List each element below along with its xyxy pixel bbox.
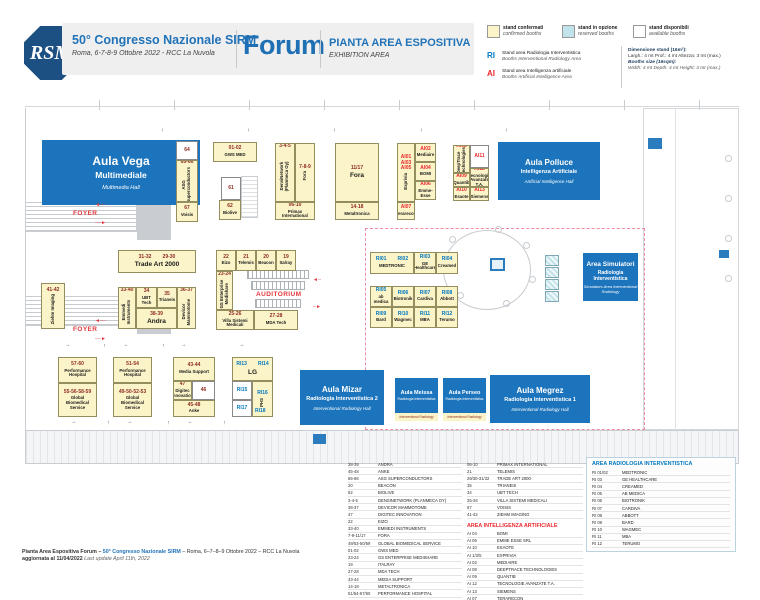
exhibitor-row: 7-9-11/17FORA — [348, 533, 462, 540]
booth-name: Esaote — [454, 195, 468, 200]
plan-title: PIANTA AREA ESPOSITIVA — [329, 37, 470, 49]
exhibitor-booth-number: 33-40 — [348, 526, 378, 531]
footer-line2: aggiornata al 11/04/2022 Last update Apr… — [22, 556, 352, 563]
foyer-block-upper — [137, 200, 171, 240]
auditorium-arrow-1: ◄╌ — [313, 277, 321, 283]
elevator-block — [719, 250, 729, 258]
arena-center-block — [490, 258, 505, 271]
booth-code: 57-60 — [71, 362, 84, 368]
hall-name: Area Simulatori — [586, 261, 634, 268]
booth-name: Metaltronica — [344, 212, 369, 217]
booth-name: MBA — [420, 318, 430, 323]
exhibitor-row: 45-48ANKE — [348, 468, 462, 475]
booth-19: 19Italray — [276, 250, 296, 271]
hall-subtitle-en: Artificial Intelligence Hall — [525, 179, 574, 184]
exhibitor-list-2: 06-10PRIMAX INTERNATIONAL21TELEMIS29/30-… — [467, 461, 583, 600]
exhibitor-name: TRADE ART 2000 — [497, 476, 583, 481]
hall-mizar: Aula MizarRadiologia Interventistica 2In… — [300, 370, 384, 425]
exhibitor-name: BEACON — [378, 483, 462, 488]
booth-code: RI03 — [420, 255, 431, 261]
booth-code: 36-37 — [180, 288, 193, 294]
flow-arrow: → — [123, 342, 129, 348]
exhibitor-booth-number: RI 01/02 — [592, 470, 622, 475]
booth-code: 51-54 — [126, 362, 139, 368]
arena-column — [523, 242, 530, 249]
exhibitor-booth-number: RI 05 — [592, 491, 622, 496]
booth-43-44: 43-44Media Support — [173, 357, 215, 381]
exhibitor-booth-number: RI 07 — [592, 506, 622, 511]
exhibitor-name: FORA — [378, 533, 462, 538]
booth-name: BOMI — [420, 172, 431, 177]
foyer-arrow-left-2: ◄╌╌ — [95, 318, 106, 324]
booth-AI02: AI02Mediaire — [415, 143, 436, 162]
booth-name: Fora — [350, 172, 364, 179]
exhibitor-row: AI 1/3/5EXPRIVIA — [467, 552, 583, 559]
booth-RI10: RI10Wagmec — [392, 307, 414, 328]
legend-swatch-confirmed — [487, 25, 500, 38]
booth-name: Biotronik — [394, 297, 413, 302]
exhibitor-name: METALTRONICA — [378, 584, 462, 589]
exhibitor-booth-number: 43-44 — [348, 577, 378, 582]
foyer-label-2: FOYER — [73, 326, 97, 333]
booth-code: 3-4-5 — [279, 144, 291, 150]
hall-name: Aula Perseo — [449, 390, 481, 396]
exhibitor-name: BOMI — [497, 531, 583, 536]
booth-38-39: 38-39Andra — [136, 308, 177, 329]
hall-meissa: Aula MeissaRadiologia InterventisticaInt… — [395, 378, 438, 421]
exhibitor-booth-number: 47 — [348, 512, 378, 517]
exhibitor-booth-number: 27-28 — [348, 569, 378, 574]
booth-name: Biolive — [223, 211, 237, 216]
hall-name: Aula Mizar — [322, 385, 362, 394]
exhibitor-name: QUANTIB — [497, 574, 583, 579]
booth-code: 7-8-9 — [299, 165, 311, 171]
exhibitor-row: 01-02GWS MED — [348, 547, 462, 554]
exhibitor-name: ESAOTE — [497, 545, 583, 550]
booth-name: LG — [248, 369, 257, 376]
booth-AI01-AI03-AI05: AI01 AI03 AI05Exprivia — [397, 143, 415, 202]
booth-55-56-58-59: 55-56-58-59Global Biomedical Service — [58, 383, 97, 417]
booth-06-10: 06-10Primax International — [275, 202, 315, 220]
ri-list-heading: AREA RADIOLOGIA INTERVENTISTICA — [592, 461, 730, 467]
column — [725, 235, 732, 242]
exhibitor-row: RI 06BIOTRONIK — [592, 498, 730, 505]
exhibitor-name: BIOLIVE — [378, 490, 462, 495]
exhibitor-booth-number: RI 12 — [592, 541, 622, 546]
exhibitor-name: EMME ESSE SRL — [497, 538, 583, 543]
legend-ai-code: AI — [487, 69, 495, 78]
booth-RI17: RI17 — [232, 400, 252, 417]
booth-67: 67Voisis — [176, 202, 198, 222]
booth-RI11: RI11MBA — [414, 307, 436, 328]
booth-name: Anke — [189, 409, 200, 414]
legend-swatch-available — [633, 25, 646, 38]
booth-code: AI11 — [474, 154, 484, 160]
flow-arrow: ↑ — [103, 343, 106, 349]
exhibitor-row: RI 05AB MEDICA — [592, 491, 730, 498]
foyer-arrow-right-2: ╌╌► — [95, 336, 106, 342]
legend-label-available: stand disponibiliavailable booths — [649, 25, 689, 37]
header: RSM 50° Congresso Nazionale SIRM Roma, 6… — [0, 0, 760, 96]
flow-arrow: ↓ — [420, 127, 423, 133]
hall-name: Aula Megrez — [516, 386, 563, 395]
exhibitor-name: EMMEDI INSTRUMENTS — [378, 526, 462, 531]
exhibitor-row: RI 07CARDIVA — [592, 505, 730, 512]
exhibitor-row: 23-24GS ENTERPRISE MEDISHARE — [348, 554, 462, 561]
booth-22: 22Eizo — [216, 250, 236, 271]
column — [725, 275, 732, 282]
booth-code: RI17 — [237, 406, 248, 412]
booth-RI04: RI04Creamed — [436, 252, 458, 274]
booth-57-60: 57-60Performance Hospital — [58, 357, 97, 383]
exhibitor-name: PERFORMANCE HOSPITAL — [378, 591, 462, 596]
booth-name: Cardiva — [417, 297, 433, 302]
left-wall — [25, 108, 26, 430]
flow-arrow: → — [181, 342, 187, 348]
exhibitor-row: 29/30-31/32TRADE ART 2000 — [467, 475, 583, 482]
flow-arrow: → — [127, 419, 133, 425]
hall-subtitle: Radiologia Interventistica 1 — [504, 397, 576, 403]
booth-name: MDA Tech — [266, 321, 287, 326]
booth-01-02: 01-02GWS MED — [213, 142, 257, 162]
exhibitor-row: 22EIZO — [348, 519, 462, 526]
booth-name: Wagmec — [394, 318, 412, 323]
exhibitor-booth-number: 65-66 — [348, 476, 378, 481]
exhibitor-name: UBT TECH — [497, 490, 583, 495]
booth-code: AI12 — [474, 168, 485, 173]
exhibitor-name: BIOTRONIK — [622, 498, 730, 503]
exhibitor-list-1: 38-39ANDRA45-48ANKE65-66ASG SUPERCONDUCT… — [348, 461, 462, 598]
flow-arrow: → — [239, 342, 245, 348]
auditorium-label: AUDITORIUM — [256, 291, 301, 298]
ri18-code: RI18 — [255, 408, 266, 414]
exhibitor-booth-number: 22 — [348, 519, 378, 524]
exhibitor-row: 43-44MEDIA SUPPORT — [348, 576, 462, 583]
booth-46: 46 — [192, 381, 215, 400]
exhibitor-row: 38-39ANDRA — [348, 461, 462, 468]
hall-simulatori: Area SimulatoriRadiologia Interventistic… — [583, 253, 638, 301]
exhibitor-booth-number: 25-26 — [467, 498, 497, 503]
exhibitor-row: 27-28MDA TECH — [348, 569, 462, 576]
legend-label-confirmed: stand confermaticonfirmed booths — [503, 25, 543, 37]
exhibitor-name: TECNOLOGIE AVANZATE T.A. — [497, 581, 583, 586]
exhibitor-row: AI 07TERARECON — [467, 595, 583, 600]
entrance-block — [313, 434, 326, 444]
booth-AI12: AI12Tecnologie Avanzate T.A. — [470, 168, 489, 187]
hall-megrez: Aula MegrezRadiologia Interventistica 1I… — [490, 375, 590, 423]
exhibitor-name: EXPRIVIA — [497, 553, 583, 558]
booth-name: Fora — [303, 171, 308, 180]
booth-name: Emmedi Instruments — [122, 295, 132, 328]
booth-47: 47Digitec Innovation — [173, 381, 192, 400]
exhibitor-row: 67VOISIS — [467, 504, 583, 511]
flow-arrow: ↓ — [161, 127, 164, 133]
booth-name: DensiNetwork (Planmeca Oy) — [280, 151, 290, 201]
booth-name: GE Healthcare — [414, 262, 436, 272]
booth-27-28: 27-28MDA Tech — [254, 310, 298, 330]
flow-arrow: ↓ — [247, 127, 250, 133]
booth-code: 11/17 — [351, 166, 363, 172]
exhibitor-name: CREAMED — [622, 484, 730, 489]
exhibitor-row: 47DIGITEC INNOVATION — [348, 511, 462, 518]
booth-code: RI13 RI14 — [236, 362, 268, 368]
stand-dimensions: Dimensione stand (16m²): Largh.: 4 mt Pr… — [628, 48, 748, 72]
arena-column — [449, 236, 456, 243]
exhibitor-row: RI 12TERUMO — [592, 541, 730, 548]
exhibitor-row: 25-26VILLA SISTEMI MEDICALI — [467, 497, 583, 504]
hall-name: Aula Vega — [92, 154, 149, 168]
booth-name: GWS MED — [224, 153, 245, 158]
exhibitor-booth-number: 21 — [467, 469, 497, 474]
booth-34: 34UBT Tech — [136, 287, 157, 308]
booth-code: RI16 — [257, 391, 268, 397]
booth-14-18: 14-18Metaltronica — [335, 202, 379, 220]
booth-name: Trade Art 2000 — [135, 261, 180, 268]
exhibitor-booth-number: 38-39 — [348, 462, 378, 467]
booth-name: Siemens — [471, 195, 489, 200]
booth-AI09: AI09Quantib — [453, 173, 470, 187]
hall-subtitle-en: Interventional Radiology Hall — [313, 406, 370, 411]
booth-AI08: AI08DeepTrace Technologies — [453, 145, 470, 173]
foyer-arrow-left-1: ◄╌╌ — [95, 202, 106, 208]
exhibitor-name: MEDTRONIC — [622, 470, 730, 475]
exhibitor-name: WAGMEC — [622, 527, 730, 532]
exhibitor-name: SIEMENS — [497, 589, 583, 594]
booth-62: 62Biolive — [219, 200, 241, 220]
exhibitor-name: GLOBAL BIOMEDICAL SERVICE — [378, 541, 462, 546]
legend-ri-code: RI — [487, 51, 495, 60]
exhibitor-row: AI 12TECNOLOGIE AVANZATE T.A. — [467, 581, 583, 588]
booth-RI12: RI12Terumo — [436, 307, 458, 328]
exhibitor-name: VOISIS — [497, 505, 583, 510]
booth-49-50-52-53: 49-50-52-53Global Biomedical Service — [113, 383, 152, 417]
booth-name: Terarecon — [397, 212, 415, 217]
hall-perseo: Aula PerseoRadiologia InterventisticaInt… — [443, 378, 486, 421]
booth-name: Quantib — [453, 181, 469, 186]
hall-subtitle: Radiologia Interventistica — [583, 270, 638, 282]
booth-code: 64 — [184, 148, 190, 154]
booth-name: Tecnologie Avanzate T.A. — [470, 174, 489, 187]
exhibitor-booth-number: AI 08 — [467, 567, 497, 572]
hall-name: Aula Polluce — [525, 158, 573, 167]
legend-ri-text: Stand area Radiologia InterventisticaBoo… — [502, 51, 581, 62]
booth-21: 21Telemis — [236, 250, 256, 271]
exhibitor-row: RI 10WAGMEC — [592, 527, 730, 534]
booth-RI03: RI03GE Healthcare — [414, 252, 436, 274]
booth-code: 06-10 — [289, 203, 302, 209]
exhibitor-booth-number: RI 06 — [592, 498, 622, 503]
exhibitor-row: AI 13SIEMENS — [467, 588, 583, 595]
booth-code: 25-26 — [229, 312, 242, 318]
booth-AI04: AI04BOMI — [415, 162, 436, 181]
header-divider — [320, 30, 321, 68]
booth-name: Digitec Innovation — [173, 389, 192, 399]
booth-20: 20Beacon — [256, 250, 276, 271]
exhibitor-name: TRIANEIS — [497, 483, 583, 488]
hall-polluce: Aula PolluceIntelligenza ArtificialeArti… — [498, 142, 600, 200]
exhibitor-name: TERUMO — [622, 541, 730, 546]
booth-name: Emme-Esse — [416, 189, 435, 199]
auditorium-arrow-2: ╌► — [313, 304, 321, 310]
exhibitor-name: EIZO — [378, 519, 462, 524]
column — [725, 155, 732, 162]
booth-code: 38-39 — [150, 312, 163, 318]
footer: Pianta Area Espositiva Forum – 50° Congr… — [22, 549, 352, 563]
exhibitor-name: DEEPTRACE TECHNOLOGIES — [497, 567, 583, 572]
exhibitor-booth-number: RI 11 — [592, 534, 622, 539]
foyer-label-1: FOYER — [73, 210, 97, 217]
exhibitor-name: GWS MED — [378, 548, 462, 553]
booth-RI13-RI14: RI13 RI14LG — [232, 357, 273, 381]
hall-subtitle-en: Simulators Area Interventional Radiology — [583, 284, 638, 294]
booth-name: Villa Sistemi Medicali — [217, 319, 253, 329]
exhibitor-name: ITALRAY — [378, 562, 462, 567]
exhibitor-row: RI 08ABBOTT — [592, 512, 730, 519]
exhibitor-row: RI 09BARD — [592, 519, 730, 526]
legend-ai-text: Stand area Intelligenza artificialeBooth… — [502, 69, 572, 80]
booth-name: Abbott — [440, 297, 454, 302]
booth-RI07: RI07Cardiva — [414, 286, 436, 307]
booth-code: RI15 — [237, 388, 248, 394]
exhibitor-booth-number: 06-10 — [467, 462, 497, 467]
flow-arrow: ↓ — [333, 127, 336, 133]
flow-arrow: → — [187, 419, 193, 425]
exhibitor-row: AI 10ESAOTE — [467, 545, 583, 552]
booth-7-8-9: 7-8-9Fora — [295, 143, 315, 202]
booth-name: GS Enterprise Medishare — [220, 279, 230, 309]
hall-subtitle-en: Multimedia Hall — [102, 185, 140, 191]
booth-code: 61 — [228, 186, 234, 192]
booth-reserved — [545, 279, 559, 290]
flow-arrow: ↑ — [107, 420, 110, 426]
exhibitor-booth-number: 19 — [348, 562, 378, 567]
exhibitor-row: AI 06EMME ESSE SRL — [467, 538, 583, 545]
booth-name: Voisis — [181, 213, 193, 218]
exhibitor-name: PRIMAX INTERNATIONAL — [497, 462, 583, 467]
booth-name: DeepTrace Technologies — [457, 151, 467, 173]
booth-33-40: 33-40Emmedi Instruments — [118, 287, 136, 329]
booth-code: AI01 AI03 AI05 — [401, 155, 412, 172]
exhibitor-name: TELEMIS — [497, 469, 583, 474]
booth-code: 41-42 — [47, 288, 60, 294]
booth-name: Primax International — [276, 210, 314, 220]
auditorium-steps — [255, 299, 301, 308]
interventional-list-panel: AREA RADIOLOGIA INTERVENTISTICA RI 01/02… — [586, 457, 736, 552]
exhibitor-booth-number: RI 10 — [592, 527, 622, 532]
booth-51-54: 51-54Performance Hospital — [113, 357, 152, 383]
exhibitor-name: BARD — [622, 520, 730, 525]
booth-36-37: 36-37Devicor Mammotome — [177, 287, 196, 329]
exhibitor-name: ANDRA — [378, 462, 462, 467]
exhibitor-booth-number: AI 12 — [467, 581, 497, 586]
exhibitor-booth-number: AI 02 — [467, 560, 497, 565]
booth-name: Performance Hospital — [114, 369, 151, 379]
legend-divider — [621, 46, 622, 88]
exhibitor-name: TERARECON — [497, 596, 583, 600]
booth-RI05: RI05ab medica — [370, 286, 392, 307]
exhibitor-name: DEVICOR MAMMOTOME — [378, 505, 462, 510]
exhibitor-name: GS ENTERPRISE MEDISHARE — [378, 555, 462, 560]
booth-code: 65-66 — [181, 160, 194, 166]
booth-name: Trianeis — [159, 298, 175, 303]
exhibitor-name: DENSINETWORK (PLANMECA OY) — [378, 498, 462, 503]
booth-name: Italray — [280, 261, 293, 266]
exhibitor-row: 3-4-5DENSINETWORK (PLANMECA OY) — [348, 497, 462, 504]
exhibitor-row: 21TELEMIS — [467, 468, 583, 475]
exhibitor-name: VILLA SISTEMI MEDICALI — [497, 498, 583, 503]
arena-column — [457, 292, 464, 299]
exhibitor-name: MBA — [622, 534, 730, 539]
booth-name: Creamed — [438, 264, 456, 269]
booth-name: Mediaire — [417, 153, 434, 158]
exhibitor-booth-number: 36-37 — [348, 505, 378, 510]
booth-RI09: RI09Bard — [370, 307, 392, 328]
stairs-61 — [241, 176, 258, 218]
exhibitor-booth-number: AI 09 — [467, 574, 497, 579]
booth-RI08: RI08Abbott — [436, 286, 458, 307]
top-grid-ticks — [25, 100, 739, 110]
congress-title: 50° Congresso Nazionale SIRM — [72, 33, 256, 47]
hall-subtitle-en: Interventional Radiology Hall — [511, 407, 568, 412]
booth-name: Bard — [376, 318, 386, 323]
exhibitor-name: CARDIVA — [622, 506, 730, 511]
booth-code: 23-24 — [218, 272, 231, 278]
exhibitor-booth-number: AI 10 — [467, 545, 497, 550]
exhibitor-row: 41-42ZIEHM IMAGING — [467, 511, 583, 518]
hall-strip: Interventional Radiology — [395, 413, 438, 421]
exhibitor-row: 06-10PRIMAX INTERNATIONAL — [467, 461, 583, 468]
exhibitor-row: 36-37DEVICOR MAMMOTOME — [348, 504, 462, 511]
booth-name: Performance Hospital — [59, 369, 96, 379]
exhibitor-booth-number: 51/54-57/60 — [348, 591, 378, 596]
hall-subtitle: Radiologia Interventistica 2 — [306, 396, 378, 402]
booth-23-24: 23-24GS Enterprise Medishare — [216, 271, 233, 310]
booth-name: Global Biomedical Service — [59, 396, 96, 410]
exhibitor-booth-number: 49/53-50/59 — [348, 541, 378, 546]
exhibitor-booth-number: AI 06 — [467, 538, 497, 543]
flow-arrow: → — [65, 342, 71, 348]
arena-column — [529, 276, 536, 283]
legend-swatch-reserved — [562, 25, 575, 38]
booth-code: 31-32 29-30 — [139, 255, 176, 261]
exhibitor-row: 49/53-50/59GLOBAL BIOMEDICAL SERVICE — [348, 540, 462, 547]
exhibitor-name: ZIEHM IMAGING — [497, 512, 583, 517]
right-wing-wall — [675, 108, 676, 430]
booth-name: Ziehm Imaging — [51, 294, 56, 324]
exhibitor-name: AB MEDICA — [622, 491, 730, 496]
hall-subtitle: Intelligenza Artificiale — [521, 169, 577, 175]
booth-65-66: 65-66ASG Superconductors — [176, 160, 198, 202]
exhibitor-booth-number: 14-18 — [348, 584, 378, 589]
booth-61: 61 — [221, 177, 241, 200]
exhibition-plan-page: RSM 50° Congresso Nazionale SIRM Roma, 6… — [0, 0, 760, 600]
exhibitor-row: RI 01/02MEDTRONIC — [592, 469, 730, 476]
exhibitor-booth-number: AI 13 — [467, 589, 497, 594]
exhibitor-booth-number: AI 1/3/5 — [467, 553, 497, 558]
exhibitor-name: GE HEALTHCARE — [622, 477, 730, 482]
exhibitor-booth-number: 20 — [348, 483, 378, 488]
exhibitor-name: ANKE — [378, 469, 462, 474]
booth-64: 64 — [176, 141, 198, 160]
booth-name: Devicor Mammotome — [182, 295, 192, 328]
exhibitor-name: ABBOTT — [622, 513, 730, 518]
exhibitor-name: ASG SUPERCONDUCTORS — [378, 476, 462, 481]
plan-subtitle: EXHIBITION AREA — [329, 52, 389, 59]
arena-column — [495, 226, 502, 233]
booth-AI07: AI07Terarecon — [397, 202, 415, 220]
ai-list-heading: AREA INTELLIGENZA ARTIFICIALE — [467, 523, 583, 529]
exhibitor-booth-number: 35 — [467, 483, 497, 488]
